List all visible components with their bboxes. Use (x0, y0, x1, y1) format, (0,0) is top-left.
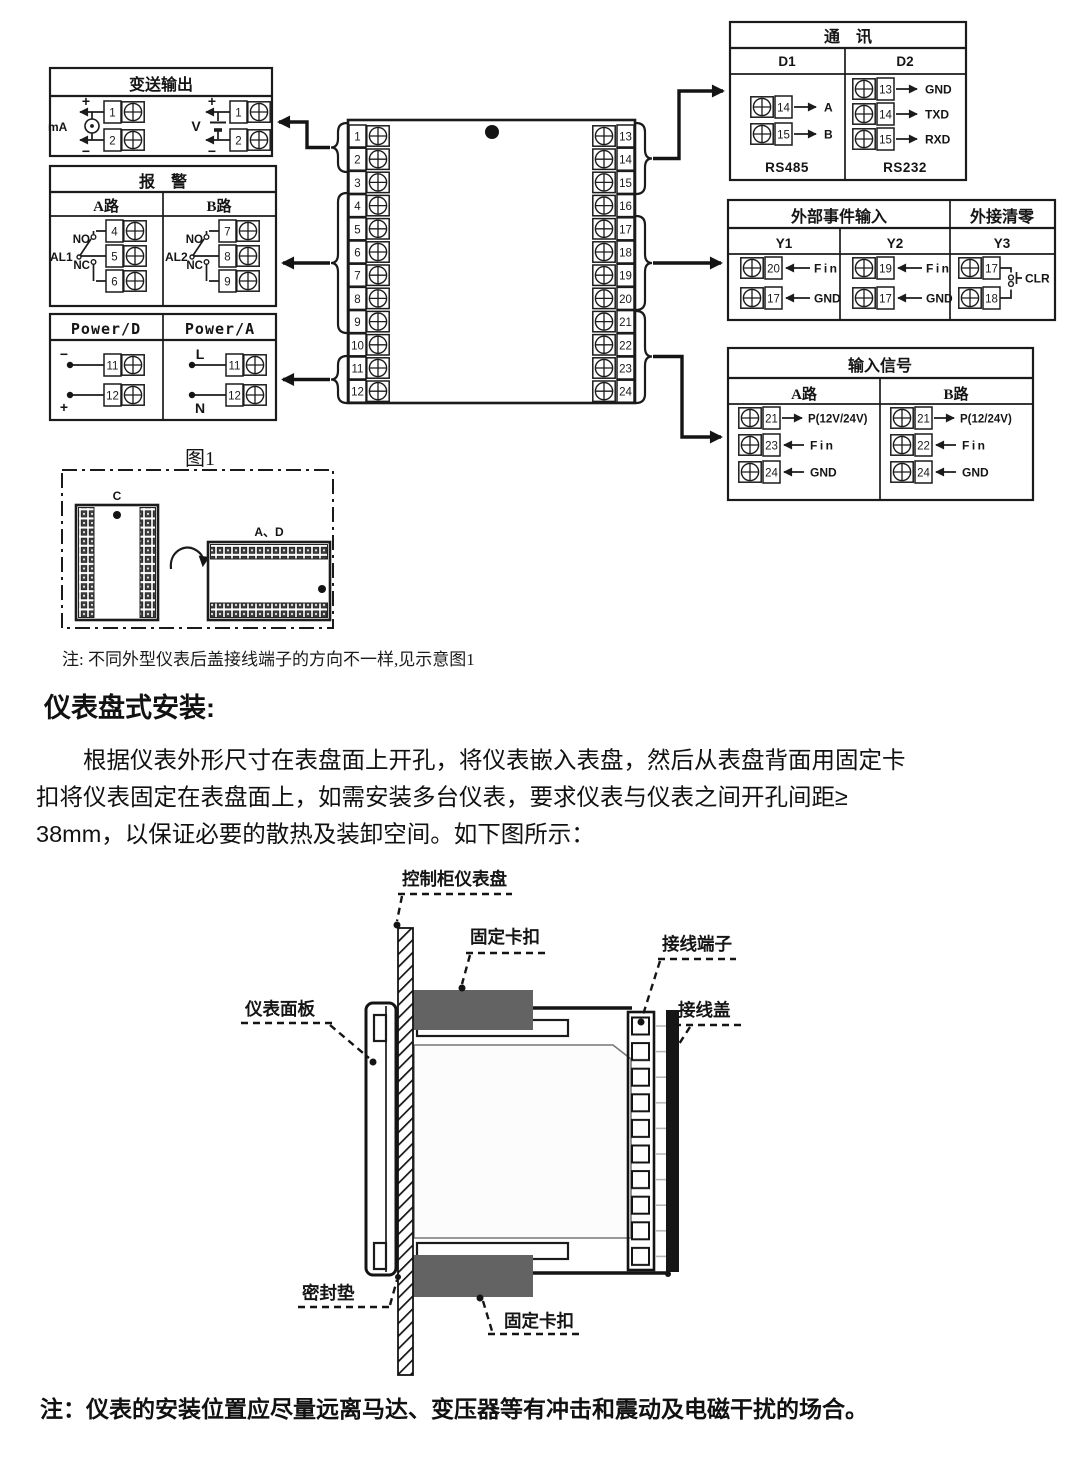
terminal-number: 3 (354, 178, 360, 190)
clear-title: 外接清零 (969, 207, 1035, 226)
v-label: V (191, 118, 201, 134)
power-a-terminals: 1112 (226, 354, 266, 406)
terminal-number: 17 (879, 294, 892, 306)
center-left-terminals: 123456789101112 (349, 125, 389, 402)
figure1-label-ad: A、D (254, 525, 284, 539)
terminal-number: 17 (985, 264, 998, 276)
label-cover: 接线盖 (678, 1000, 731, 1020)
transmit-title: 变送输出 (129, 75, 193, 94)
terminal-number: 1 (354, 132, 360, 144)
terminal-number: 24 (765, 468, 778, 480)
comm-d1-label-b: B (824, 128, 833, 142)
event-y1-terminals: 2017 (741, 257, 782, 309)
clear-y3-terminals: 1718 (959, 257, 1000, 309)
label-clip-top: 固定卡扣 (470, 927, 540, 947)
figure1: 图1 C A、D (62, 448, 333, 628)
input-b-p: P(12/24V) (960, 414, 1012, 426)
terminal-number: 6 (111, 277, 117, 289)
terminal-number: 24 (619, 387, 632, 399)
y1-gnd: GND (814, 292, 841, 306)
v-terminals: 12 (230, 101, 270, 151)
v-minus: − (208, 143, 216, 159)
terminal-number: 19 (619, 271, 632, 283)
input-a-fin: Fin (810, 439, 836, 453)
transmit-output-box: 变送输出 + − mA 12 + − V 12 (48, 68, 272, 159)
input-a-p: P(12V/24V) (808, 414, 868, 426)
power-box: Power/D Power/A − + 1112 L N 1112 (50, 314, 276, 420)
comm-col-d1: D1 (778, 54, 796, 69)
terminal-number: 21 (765, 414, 778, 426)
label-clip-bottom: 固定卡扣 (504, 1311, 574, 1331)
terminal-number: 13 (879, 85, 892, 97)
terminal-number: 7 (224, 227, 230, 239)
orientation-dot (485, 125, 499, 139)
section-heading: 仪表盘式安装: (44, 686, 215, 725)
power-d-minus: − (60, 346, 68, 362)
event-col-y3: Y3 (994, 236, 1011, 251)
alarm-col-a: A路 (93, 197, 120, 215)
power-d-wiring: − + (60, 346, 104, 415)
event-col-y2: Y2 (887, 236, 904, 251)
terminal-number: 21 (619, 317, 632, 329)
alarm-b-no: NO (186, 234, 203, 246)
clear-switch: CLR (1000, 268, 1050, 298)
ma-plus: + (82, 93, 90, 109)
terminal-number: 20 (619, 294, 632, 306)
bottom-note: 注：仪表的安装位置应尽量远离马达、变压器等有冲击和震动及电磁干扰的场合。 (40, 1390, 868, 1424)
alarm-a-nc: NC (73, 260, 90, 272)
v-plus: + (208, 93, 216, 109)
input-signal-box: 输入信号 A路 B路 212324 P(12V/24V) Fin GND 212… (728, 348, 1033, 500)
power-d-terminals: 1112 (104, 354, 144, 406)
terminal-number: 10 (351, 340, 364, 352)
bottom-clip (412, 1255, 533, 1297)
paragraph-line1: 根据仪表外形尺寸在表盘面上开孔，将仪表嵌入表盘，然后从表盘背面用固定卡 (36, 742, 1046, 779)
terminal-number: 23 (619, 364, 632, 376)
event-y2-terminals: 1917 (853, 257, 894, 309)
terminal-number: 5 (354, 224, 360, 236)
terminal-number: 15 (879, 135, 892, 147)
y2-gnd: GND (926, 292, 953, 306)
ma-terminals: 12 (104, 101, 144, 151)
terminal-number: 9 (224, 277, 230, 289)
rotate-arrow-icon (171, 548, 203, 569)
input-b-fin: Fin (962, 439, 988, 453)
terminal-number: 8 (224, 252, 230, 264)
alarm-al2: AL2 (165, 250, 188, 264)
input-b-gnd: GND (962, 466, 989, 480)
terminal-number: 15 (619, 178, 632, 190)
terminal-number: 2 (235, 136, 241, 148)
power-d-header: Power/D (71, 320, 141, 338)
terminal-number: 12 (106, 391, 119, 403)
figure1-note: 注: 不同外型仪表后盖接线端子的方向不一样,见示意图1 (62, 645, 475, 670)
terminal-number: 11 (107, 361, 119, 373)
label-cabinet-panel: 控制柜仪表盘 (402, 869, 507, 889)
input-col-b: B路 (943, 385, 969, 403)
terminal-number: 18 (619, 248, 632, 260)
terminal-number: 22 (917, 441, 930, 453)
terminal-number: 13 (619, 132, 632, 144)
terminal-number: 14 (619, 155, 632, 167)
input-title: 输入信号 (848, 356, 912, 375)
alarm-box: 报 警 A路 B路 NO NC AL1 456 NO NC (50, 166, 276, 306)
terminal-number: 16 (619, 201, 632, 213)
connector-arrows (279, 91, 723, 437)
input-col-a: A路 (791, 385, 818, 403)
event-col-y1: Y1 (776, 236, 793, 251)
comm-title: 通 讯 (824, 28, 872, 46)
comm-d2-terminals: 131415 (853, 78, 894, 150)
terminal-block (628, 1012, 654, 1270)
ma-minus: − (82, 143, 90, 159)
comm-rs232: RS232 (883, 160, 927, 175)
terminal-number: 23 (765, 441, 778, 453)
alarm-title: 报 警 (139, 172, 187, 191)
label-faceplate: 仪表面板 (244, 999, 315, 1019)
terminal-number: 20 (767, 264, 780, 276)
panel-mount-diagram: 控制柜仪表盘 固定卡扣 接线端子 接线盖 仪表面板 密封垫 固定卡扣 (0, 855, 1080, 1400)
comm-d1-terminals: 1415 (751, 96, 792, 145)
terminal-number: 1 (235, 108, 241, 120)
terminal-number: 17 (767, 294, 780, 306)
terminal-number: 6 (354, 248, 360, 260)
ma-label: mA (48, 120, 68, 134)
terminal-number: 9 (354, 317, 360, 329)
terminal-number: 8 (354, 294, 360, 306)
alarm-a-no: NO (73, 234, 90, 246)
terminal-number: 2 (354, 155, 360, 167)
terminal-number: 19 (879, 264, 892, 276)
terminal-number: 5 (111, 252, 117, 264)
comm-d2-label-rxd: RXD (925, 133, 951, 147)
terminal-number: 4 (111, 227, 118, 239)
terminal-number: 14 (879, 110, 892, 122)
alarm-al1: AL1 (50, 250, 73, 264)
terminal-number: 15 (777, 130, 790, 142)
instrument-body (414, 1045, 631, 1238)
wiring-diagram: 变送输出 + − mA 12 + − V 12 报 警 A路 B路 (0, 0, 1080, 692)
top-clip (412, 990, 533, 1030)
terminal-number: 7 (354, 271, 360, 283)
manual-page: 变送输出 + − mA 12 + − V 12 报 警 A路 B路 (0, 0, 1080, 1463)
alarm-b-switch: NO NC AL2 (165, 231, 219, 281)
terminal-number: 12 (351, 387, 364, 399)
paragraph-line3: 38mm，以保证必要的散热及装卸空间。如下图所示： (36, 816, 1046, 853)
battery-icon (210, 123, 226, 131)
terminal-number: 24 (917, 468, 930, 480)
input-a-terminals: 212324 (739, 407, 780, 483)
figure1-label-c: C (113, 489, 122, 503)
faceplate-bezel (366, 1003, 396, 1275)
alarm-b-terminals: 789 (219, 220, 259, 292)
input-b-terminals: 212224 (891, 407, 932, 483)
power-a-l: L (196, 346, 205, 362)
power-d-plus: + (60, 399, 68, 415)
power-a-header: Power/A (185, 320, 255, 338)
event-input-box: 外部事件输入 外接清零 Y1 Y2 Y3 2017 Fin GND 1917 F… (728, 200, 1055, 320)
power-a-n: N (195, 400, 205, 416)
paragraph-line2: 扣将仪表固定在表盘面上，如需安装多台仪表，要求仪表与仪表之间开孔间距≥ (36, 779, 1046, 816)
figure1-title: 图1 (185, 448, 215, 470)
terminal-number: 17 (619, 224, 632, 236)
cabinet-panel (398, 928, 413, 1375)
label-gasket: 密封垫 (302, 1283, 355, 1303)
comm-d2-label-gnd: GND (925, 83, 952, 97)
instrument-cross-section (366, 928, 679, 1375)
alarm-a-switch: NO NC AL1 (50, 231, 106, 281)
terminal-number: 11 (229, 361, 241, 373)
comm-rs485: RS485 (765, 160, 809, 175)
terminal-number: 18 (985, 294, 998, 306)
terminal-number: 21 (917, 414, 930, 426)
label-terminal: 接线端子 (662, 934, 732, 954)
center-right-terminals: 131415161718192021222324 (593, 125, 634, 402)
terminal-number: 4 (354, 201, 361, 213)
clr-label: CLR (1025, 272, 1050, 286)
input-a-gnd: GND (810, 466, 837, 480)
comm-box: 通 讯 D1 D2 1415 A B RS485 131415 GND TXD … (730, 22, 966, 180)
alarm-col-b: B路 (206, 197, 232, 215)
terminal-number: 14 (777, 103, 790, 115)
comm-d1-label-a: A (824, 101, 833, 115)
central-terminal-block: 123456789101112 131415161718192021222324 (279, 91, 723, 437)
comm-d2-label-txd: TXD (925, 108, 949, 122)
terminal-number: 12 (228, 391, 241, 403)
terminal-number: 2 (109, 136, 115, 148)
terminal-cover-bar (666, 1010, 679, 1272)
power-a-wiring: L N (189, 346, 226, 416)
terminal-number: 11 (352, 364, 364, 376)
comm-col-d2: D2 (896, 54, 913, 69)
y1-fin: Fin (814, 262, 840, 276)
alarm-a-terminals: 456 (106, 220, 146, 292)
terminal-number: 22 (619, 340, 632, 352)
install-paragraph: 根据仪表外形尺寸在表盘面上开孔，将仪表嵌入表盘，然后从表盘背面用固定卡 扣将仪表… (36, 742, 1046, 853)
event-title: 外部事件输入 (790, 207, 887, 226)
terminal-number: 1 (109, 108, 115, 120)
y2-fin: Fin (926, 262, 952, 276)
alarm-b-nc: NC (186, 260, 203, 272)
